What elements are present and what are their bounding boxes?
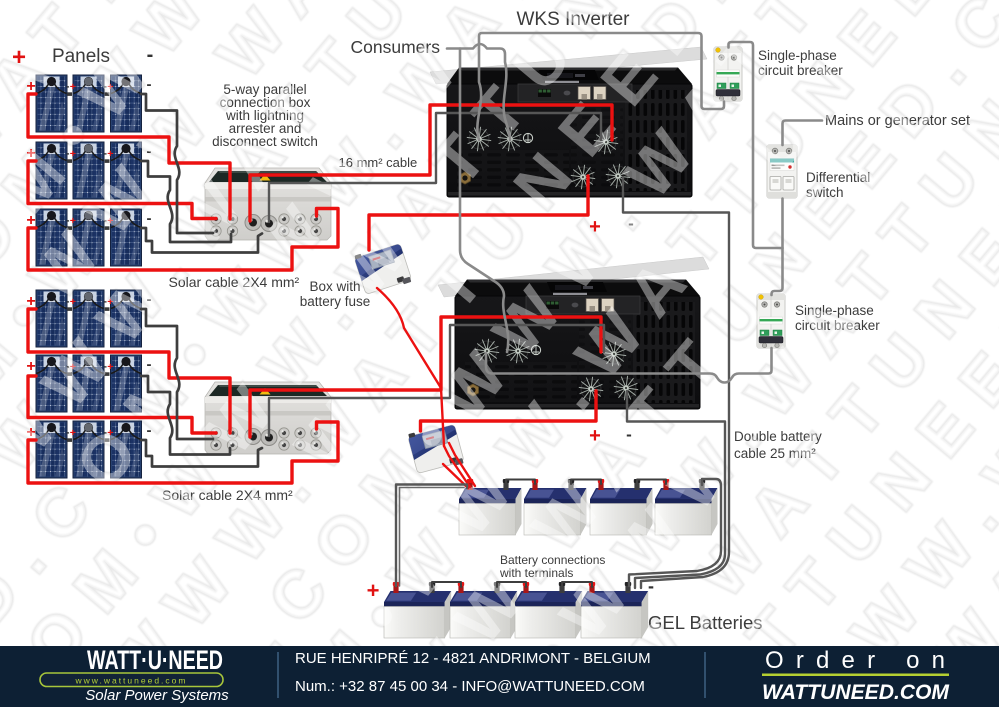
svg-text:RUE HENRIPRÉ 12 - 4821 ANDRIMO: RUE HENRIPRÉ 12 - 4821 ANDRIMONT - BELGI…	[295, 650, 651, 667]
svg-text:Solar Power Systems: Solar Power Systems	[85, 687, 229, 704]
svg-text:WATTUNEED.COM: WATTUNEED.COM	[762, 681, 950, 704]
svg-text:WATT·U·NEED: WATT·U·NEED	[87, 645, 223, 675]
svg-text:www.wattuneed.com: www.wattuneed.com	[75, 676, 188, 686]
svg-text:Num.: +32 87 45 00 34 - INFO@W: Num.: +32 87 45 00 34 - INFO@WATTUNEED.C…	[295, 678, 645, 695]
